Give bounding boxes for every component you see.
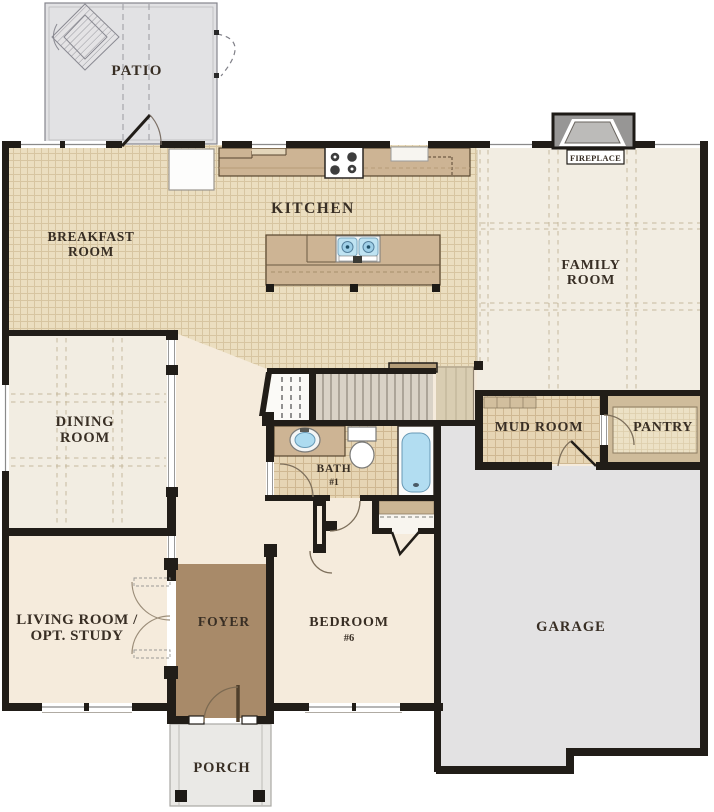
svg-text:PATIO: PATIO <box>111 63 162 79</box>
svg-text:DINING: DINING <box>56 414 115 430</box>
svg-text:PANTRY: PANTRY <box>633 420 693 435</box>
svg-text:MUD ROOM: MUD ROOM <box>495 420 583 435</box>
svg-text:ROOM: ROOM <box>68 244 114 259</box>
svg-text:#6: #6 <box>344 633 355 644</box>
svg-text:BEDROOM: BEDROOM <box>309 615 389 630</box>
svg-text:ROOM: ROOM <box>60 430 110 446</box>
svg-text:FAMILY: FAMILY <box>561 258 620 273</box>
svg-text:BREAKFAST: BREAKFAST <box>48 229 135 244</box>
svg-text:FOYER: FOYER <box>198 614 250 629</box>
svg-text:KITCHEN: KITCHEN <box>271 200 355 217</box>
svg-text:LIVING ROOM /: LIVING ROOM / <box>16 612 138 628</box>
svg-text:OPT. STUDY: OPT. STUDY <box>30 628 123 644</box>
svg-text:#1: #1 <box>329 478 339 488</box>
svg-text:FIREPLACE: FIREPLACE <box>570 153 621 163</box>
svg-text:ROOM: ROOM <box>567 273 615 288</box>
svg-text:BATH: BATH <box>317 463 352 475</box>
svg-text:GARAGE: GARAGE <box>536 619 606 635</box>
svg-text:PORCH: PORCH <box>193 760 250 776</box>
